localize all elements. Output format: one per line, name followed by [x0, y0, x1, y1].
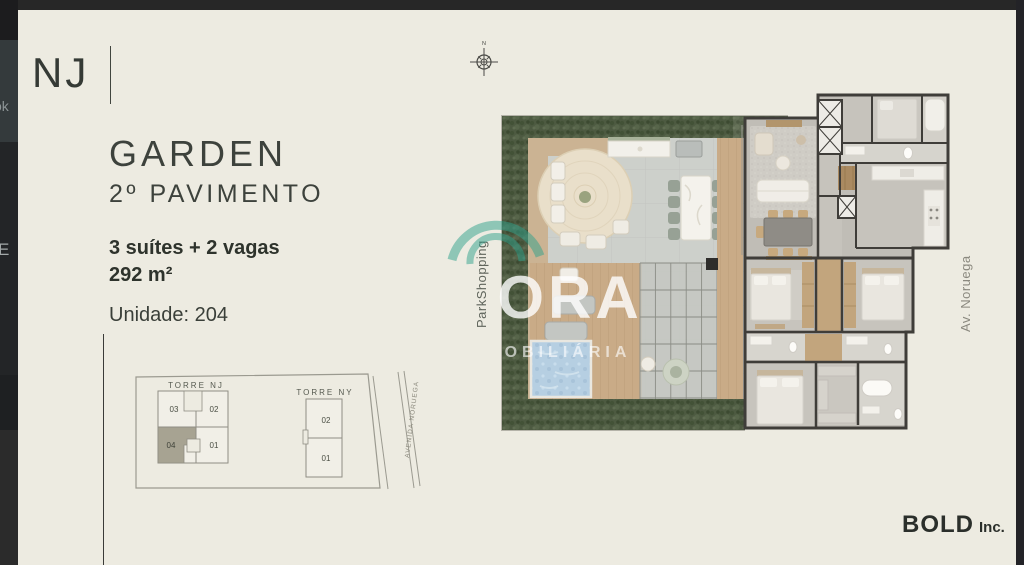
unit-specs: 3 suítes + 2 vagas 292 m²: [109, 235, 280, 289]
unit-number: Unidade: 204: [109, 304, 228, 327]
vertical-rule: [103, 334, 104, 565]
brand-name: BOLD: [902, 511, 974, 539]
nj-logo: NJ: [32, 52, 89, 94]
background-top-bar: [0, 0, 1024, 10]
clipped-text-fragment: E: [0, 240, 9, 260]
background-segment: [0, 375, 18, 430]
spec-suites-vagas: 3 suítes + 2 vagas: [109, 235, 280, 262]
background-window-edge: ok E: [0, 0, 18, 565]
background-window-edge-right: [1016, 0, 1024, 565]
logo-divider: [110, 46, 111, 104]
page-subtitle: 2º PAVIMENTO: [109, 182, 324, 207]
background-segment: [0, 40, 18, 142]
floorplan-slide: NJ GARDEN 2º PAVIMENTO 3 suítes + 2 vaga…: [18, 10, 1016, 565]
background-segment: [0, 430, 18, 565]
screenshot-root: ok E NJ GARDEN 2º PAVIMENTO 3 suítes + 2…: [0, 0, 1024, 565]
spec-area: 292 m²: [109, 262, 280, 289]
clipped-text-fragment: ok: [0, 98, 9, 114]
developer-brand: BOLD Inc.: [902, 511, 1005, 539]
brand-suffix: Inc.: [979, 519, 1005, 536]
page-title: GARDEN: [109, 136, 287, 172]
